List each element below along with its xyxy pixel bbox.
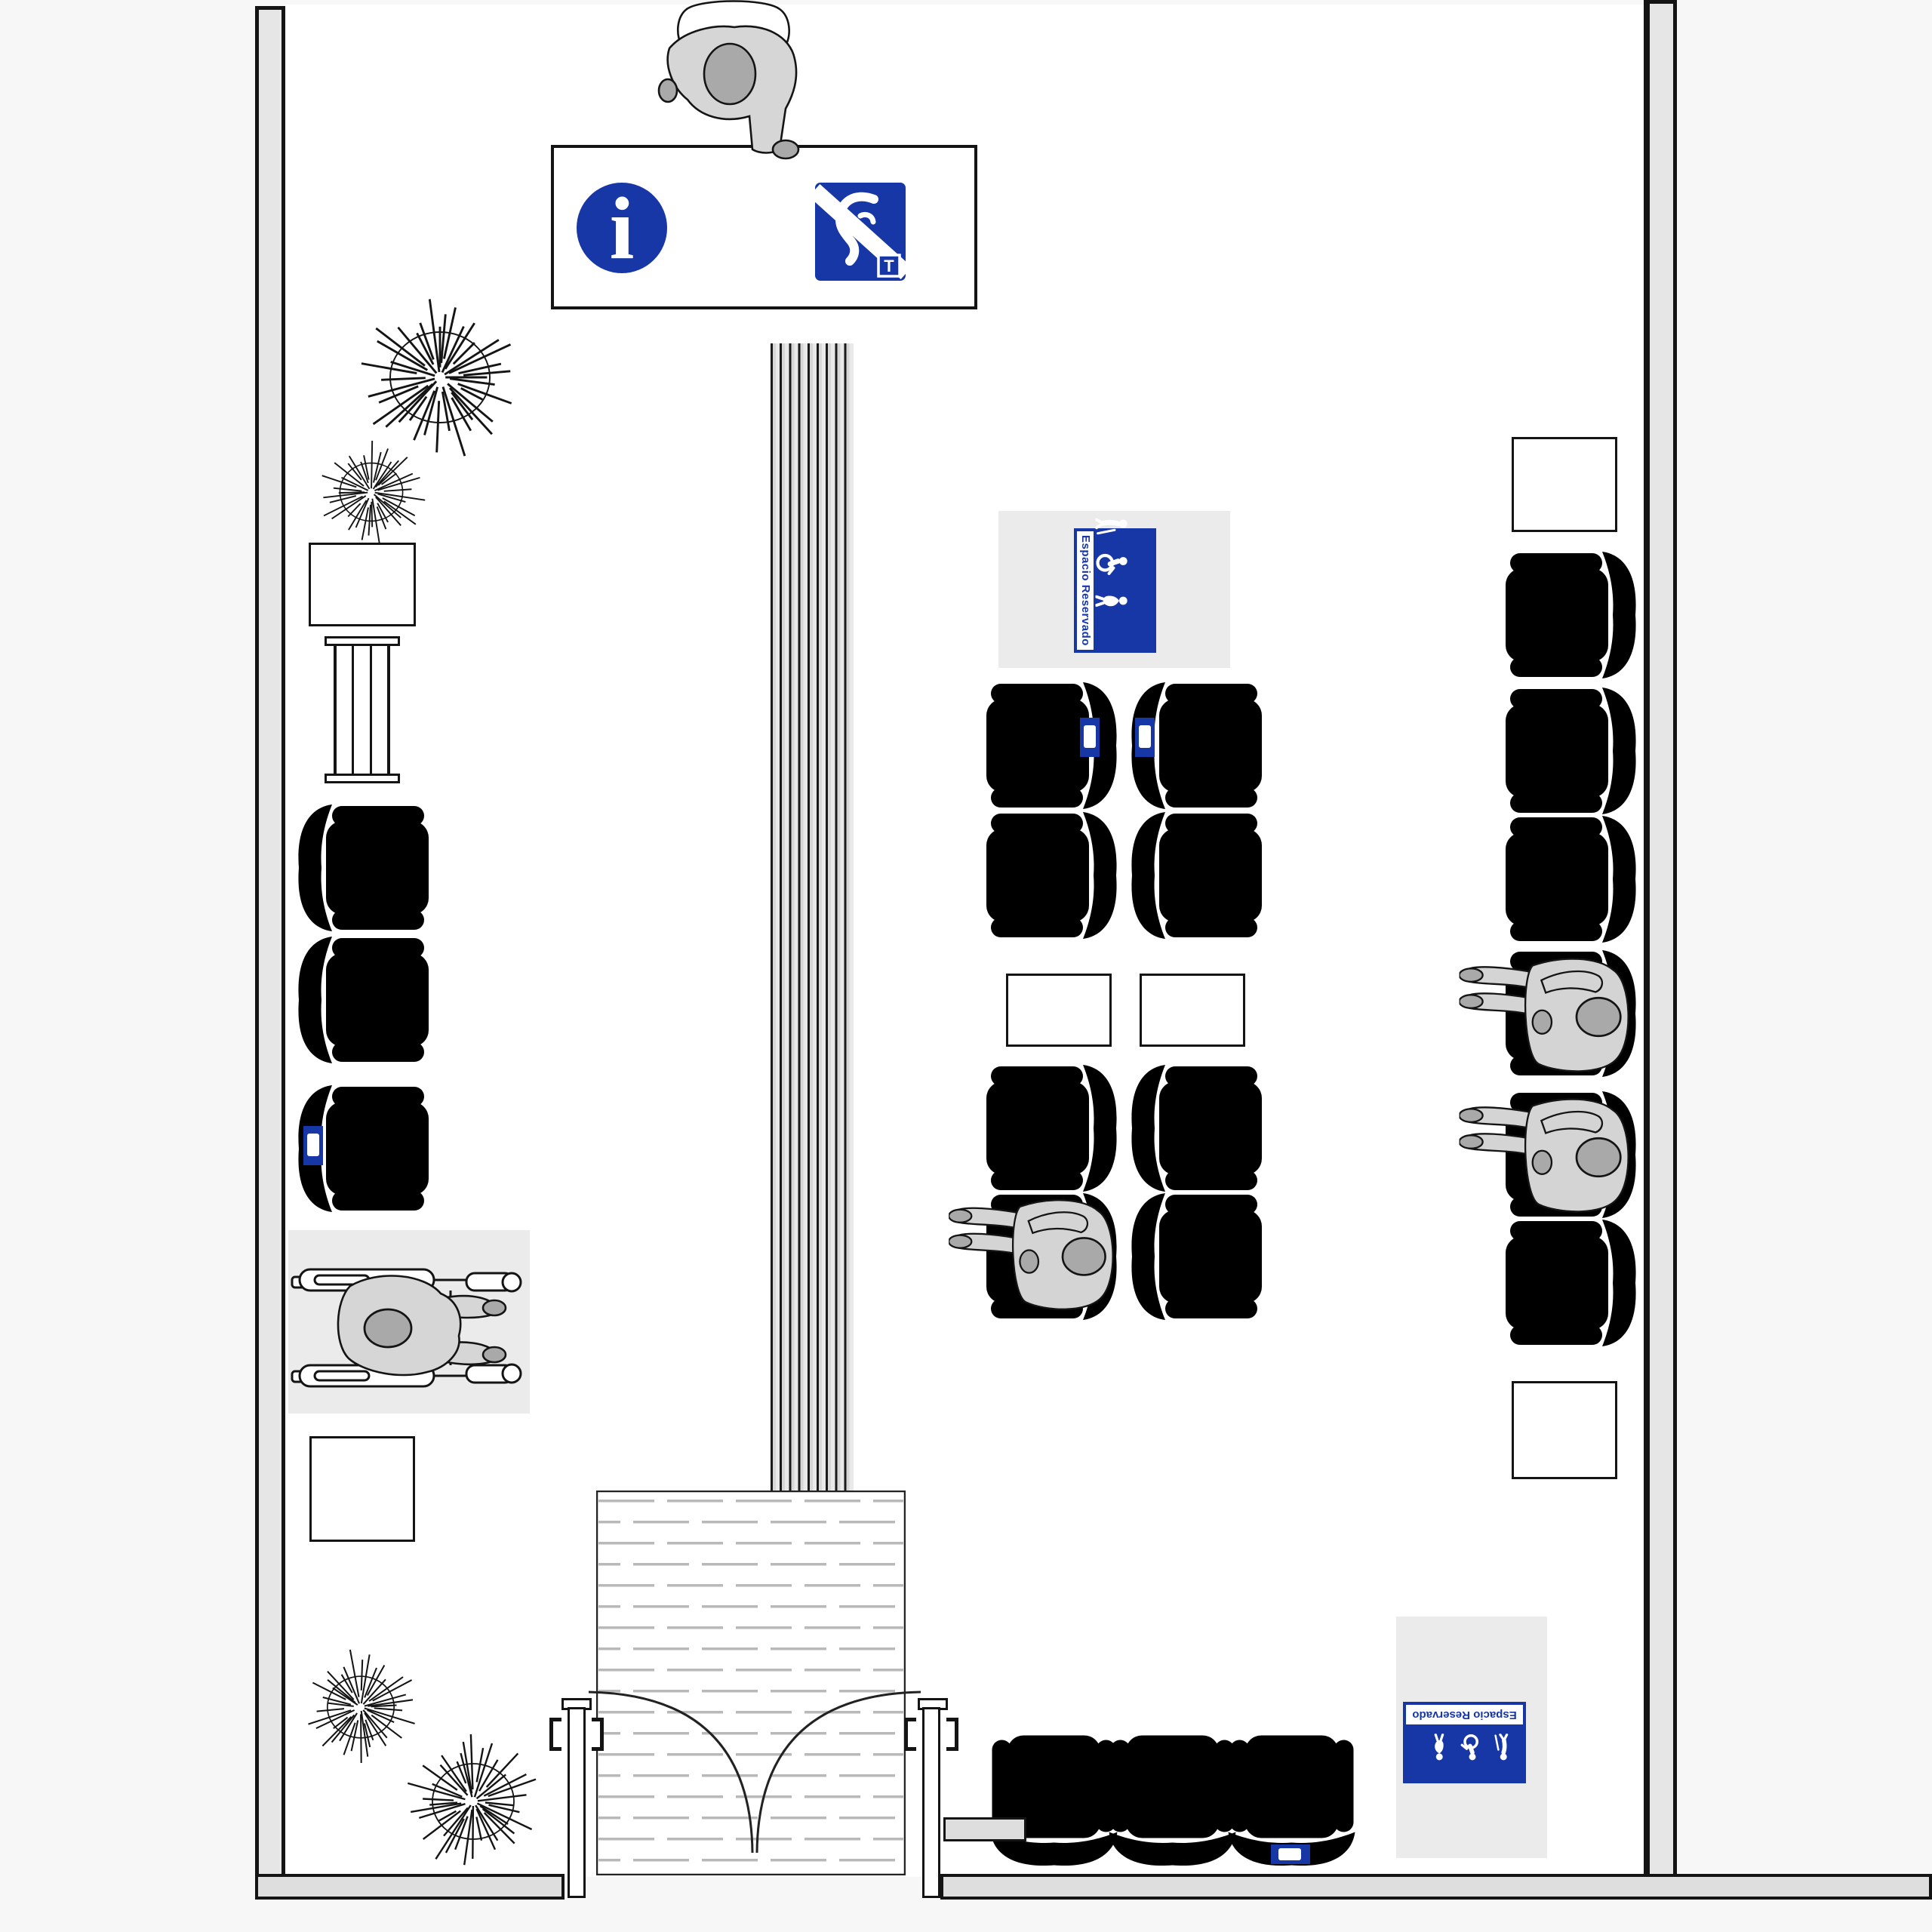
table <box>1006 974 1112 1047</box>
door-jamb-right <box>922 1707 940 1898</box>
person-seated-figure <box>1457 952 1645 1081</box>
seat <box>1122 1063 1262 1193</box>
svg-text:T: T <box>884 257 894 275</box>
wall-bottom-right <box>940 1874 1932 1900</box>
seat <box>1506 686 1645 816</box>
wall-bottom-left <box>255 1874 565 1900</box>
wheelchair-user-figure <box>288 1230 530 1414</box>
door-closer-bracket <box>946 1718 958 1751</box>
seat <box>986 1063 1126 1193</box>
information-counter-sign: i T <box>551 145 977 309</box>
person-seated-figure <box>1457 1093 1645 1221</box>
wall-pier <box>943 1817 1026 1841</box>
door-closer-bracket <box>904 1718 916 1751</box>
reserved-seat-tag <box>1271 1844 1310 1864</box>
wall-right <box>1644 0 1677 1898</box>
plant <box>398 1726 549 1877</box>
seat <box>1506 1218 1645 1348</box>
information-icon: i <box>575 181 669 275</box>
accessibility-icons <box>1420 1734 1510 1762</box>
reserved-sign: Espacio Reservado <box>1074 528 1156 653</box>
side-table <box>309 1436 415 1542</box>
plant <box>311 432 432 552</box>
door-jamb-left <box>568 1707 586 1898</box>
table <box>1512 1381 1617 1479</box>
reserved-seat <box>986 681 1126 811</box>
seat <box>989 1736 1119 1875</box>
wall-left <box>255 6 285 1898</box>
reserved-sign-label: Espacio Reservado <box>1406 1705 1523 1724</box>
floor-plan: i T <box>0 0 1932 1932</box>
reserved-seat-tag <box>1080 718 1100 757</box>
seat <box>1506 550 1645 680</box>
door-closer-bracket <box>549 1718 561 1751</box>
reserved-seat-tag <box>1135 718 1155 757</box>
seat <box>1122 811 1262 940</box>
seat <box>1122 1192 1262 1321</box>
reserved-sign: Espacio Reservado <box>1403 1702 1526 1783</box>
table <box>1512 437 1617 532</box>
door-closer-bracket <box>592 1718 604 1751</box>
seat <box>289 935 429 1065</box>
reserved-seat-tag <box>303 1126 323 1165</box>
side-table <box>309 543 416 626</box>
svg-text:i: i <box>610 181 635 275</box>
seat <box>1108 1736 1238 1875</box>
reserved-sign-label: Espacio Reservado <box>1077 531 1094 650</box>
person-seated-figure <box>947 1194 1128 1318</box>
seat <box>986 811 1126 940</box>
accessibility-icons <box>1096 516 1130 625</box>
seat <box>289 803 429 933</box>
tactile-guide-path <box>771 343 854 1492</box>
seat <box>1506 814 1645 944</box>
entrance-mat <box>596 1491 906 1875</box>
hearing-loop-icon: T <box>815 183 906 281</box>
person-standing-figure <box>645 2 819 157</box>
table <box>1140 974 1245 1047</box>
